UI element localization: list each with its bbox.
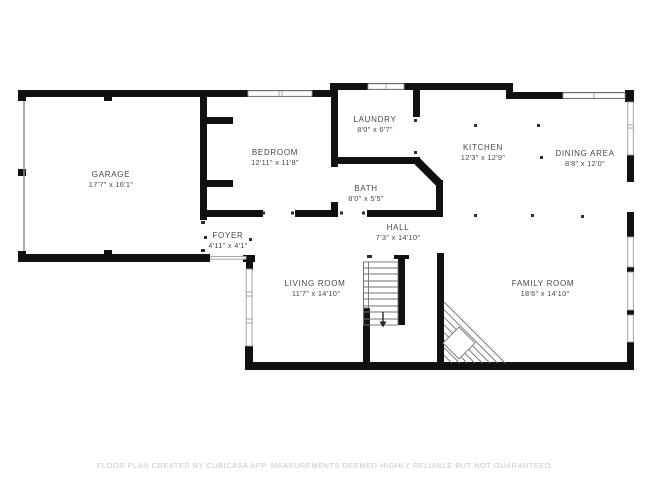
room-label-hall: HALL 7'3" x 14'10" [376,223,421,242]
kitchen-name: KITCHEN [463,143,503,152]
room-label-foyer: FOYER 4'11" x 4'1" [208,231,248,250]
bath-dims: 8'0" x 5'5" [348,194,384,203]
hall-dims: 7'3" x 14'10" [376,233,421,242]
disclaimer-text: FLOOR PLAN CREATED BY CUBICASA APP. MEAS… [0,461,650,470]
foyer-dims: 4'11" x 4'1" [208,241,248,250]
room-label-dining-area: DINING AREA 8'8" x 12'0" [555,149,614,168]
dining-area-dims: 8'8" x 12'0" [565,159,605,168]
staircase-winder [443,302,505,363]
bedroom-name: BEDROOM [252,148,298,157]
family-room-dims: 18'6" x 14'10" [521,289,570,298]
garage-dims: 17'7" x 16'1" [89,180,134,189]
room-label-kitchen: KITCHEN 12'3" x 12'9" [461,143,506,162]
living-room-dims: 11'7" x 14'10" [292,289,340,298]
family-room-name: FAMILY ROOM [512,279,575,288]
floor-plan-drawing: GARAGE 17'7" x 16'1" BEDROOM 12'11" x 11… [0,0,650,488]
walls [18,83,634,370]
living-room-name: LIVING ROOM [284,279,345,288]
dining-area-name: DINING AREA [555,149,614,158]
foyer-name: FOYER [212,231,243,240]
garage-name: GARAGE [92,170,130,179]
floor-plan-page: GARAGE 17'7" x 16'1" BEDROOM 12'11" x 11… [0,0,650,488]
room-label-bedroom: BEDROOM 12'11" x 11'8" [251,148,299,167]
room-label-bath: BATH 8'0" x 5'5" [348,184,384,203]
room-label-laundry: LAUNDRY 8'0" x 6'7" [354,115,397,134]
laundry-dims: 8'0" x 6'7" [357,125,393,134]
bath-name: BATH [354,184,378,193]
room-label-living-room: LIVING ROOM 11'7" x 14'10" [284,279,345,298]
kitchen-dims: 12'3" x 12'9" [461,153,506,162]
room-labels: GARAGE 17'7" x 16'1" BEDROOM 12'11" x 11… [89,115,615,298]
hall-name: HALL [387,223,410,232]
room-label-garage: GARAGE 17'7" x 16'1" [89,170,134,189]
bedroom-dims: 12'11" x 11'8" [251,158,299,167]
room-label-family-room: FAMILY ROOM 18'6" x 14'10" [512,279,575,298]
laundry-name: LAUNDRY [354,115,397,124]
